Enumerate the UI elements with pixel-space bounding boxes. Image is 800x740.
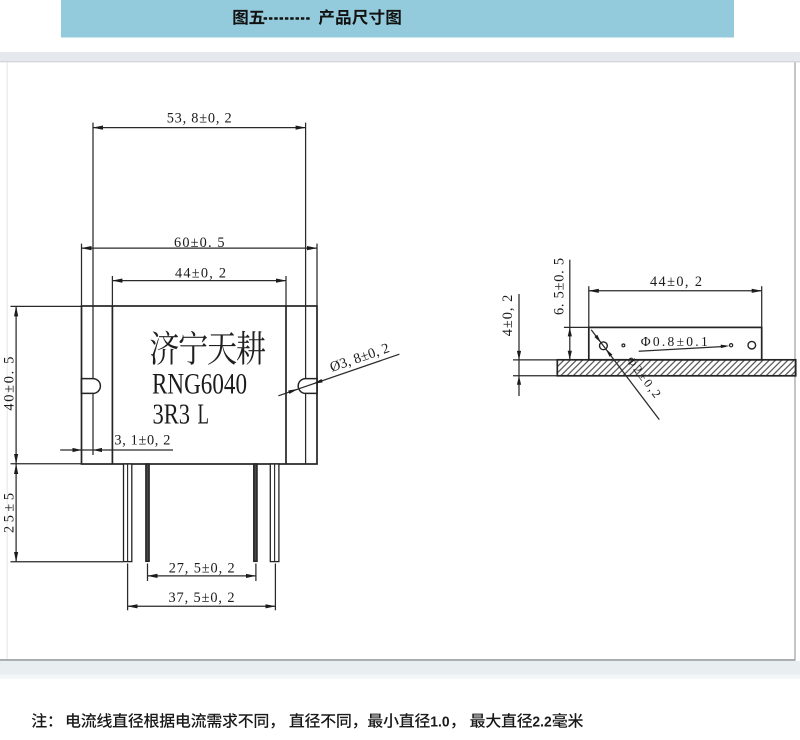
svg-text:L: L xyxy=(198,400,210,431)
svg-text:60±0. 5: 60±0. 5 xyxy=(174,235,225,251)
svg-text:4±0, 2: 4±0, 2 xyxy=(500,295,516,337)
svg-text:44±0, 2: 44±0, 2 xyxy=(175,265,226,281)
svg-text:37, 5±0, 2: 37, 5±0, 2 xyxy=(169,590,235,606)
svg-text:6. 5±0. 5: 6. 5±0. 5 xyxy=(551,258,567,315)
svg-text:27, 5±0, 2: 27, 5±0, 2 xyxy=(169,560,235,576)
svg-text:53, 8±0, 2: 53, 8±0, 2 xyxy=(167,111,232,127)
svg-text:1.0: 1.0 xyxy=(430,714,449,731)
svg-text:3, 1±0, 2: 3, 1±0, 2 xyxy=(114,433,170,449)
svg-text:3R3: 3R3 xyxy=(153,400,191,431)
svg-text:RNG6040: RNG6040 xyxy=(152,369,247,401)
svg-text:2.2: 2.2 xyxy=(532,714,551,731)
svg-text:44±0, 2: 44±0, 2 xyxy=(650,274,702,290)
svg-text:40±0. 5: 40±0. 5 xyxy=(2,357,18,411)
